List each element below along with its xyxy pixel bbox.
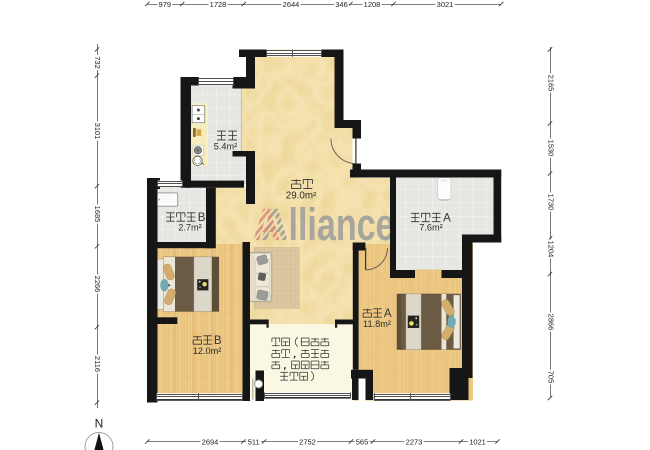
svg-text:1021: 1021 <box>469 437 486 446</box>
svg-text:29.0m²: 29.0m² <box>286 191 317 202</box>
svg-text:N: N <box>95 417 104 431</box>
svg-text:1204: 1204 <box>547 241 556 258</box>
svg-text:1730: 1730 <box>547 194 556 211</box>
svg-text:2165: 2165 <box>547 75 556 92</box>
svg-text:2266: 2266 <box>93 276 102 293</box>
svg-text:lliance: lliance <box>289 199 395 250</box>
svg-text:1685: 1685 <box>93 206 102 223</box>
svg-text:979: 979 <box>159 0 172 9</box>
svg-text:3021: 3021 <box>437 0 454 9</box>
svg-text:1530: 1530 <box>547 140 556 157</box>
svg-text:732: 732 <box>93 56 102 69</box>
svg-text:7.6m²: 7.6m² <box>419 223 443 233</box>
svg-text:5.4m²: 5.4m² <box>214 142 238 152</box>
svg-text:1208: 1208 <box>364 0 381 9</box>
svg-text:2866: 2866 <box>547 314 556 331</box>
svg-text:2694: 2694 <box>202 437 219 446</box>
svg-text:2273: 2273 <box>406 437 423 446</box>
svg-text:2116: 2116 <box>93 356 102 372</box>
svg-text:A: A <box>384 308 392 320</box>
svg-text:2644: 2644 <box>283 0 300 9</box>
svg-text:346: 346 <box>335 0 348 9</box>
svg-text:12.0m²: 12.0m² <box>193 346 222 356</box>
svg-text:B: B <box>214 335 222 347</box>
svg-text:1728: 1728 <box>210 0 227 9</box>
svg-text:705: 705 <box>547 371 556 384</box>
svg-text:511: 511 <box>248 437 260 446</box>
svg-text:565: 565 <box>356 437 369 446</box>
svg-text:11.8m²: 11.8m² <box>363 319 391 329</box>
svg-text:A: A <box>253 199 281 250</box>
svg-text:A: A <box>443 212 451 224</box>
svg-text:2.7m²: 2.7m² <box>178 223 202 233</box>
svg-text:3101: 3101 <box>93 123 102 140</box>
svg-text:2752: 2752 <box>299 437 316 446</box>
